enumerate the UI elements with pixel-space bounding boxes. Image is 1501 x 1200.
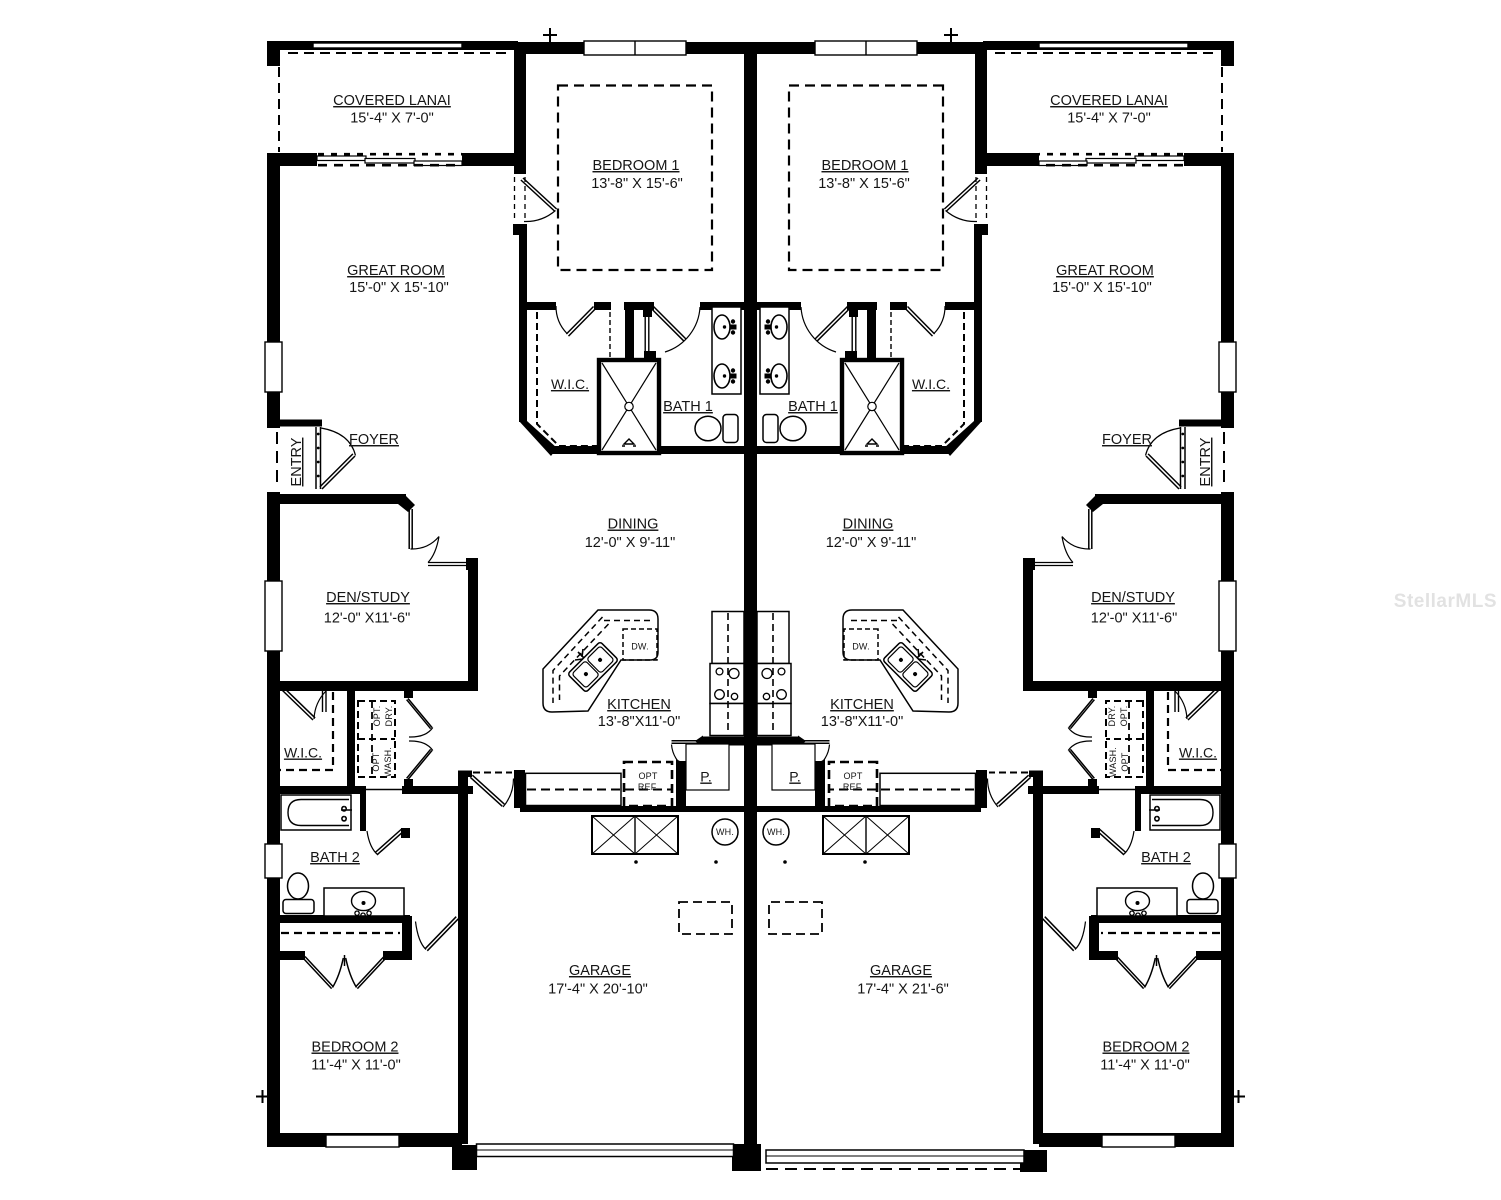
svg-text:OPT.: OPT.: [1119, 706, 1129, 727]
svg-text:KITCHEN: KITCHEN: [607, 697, 671, 713]
svg-text:OPT: OPT: [1120, 752, 1130, 771]
svg-text:W.I.C.: W.I.C.: [1179, 745, 1217, 761]
svg-text:WH.: WH.: [716, 827, 734, 837]
svg-text:15'-0" X 15'-10": 15'-0" X 15'-10": [349, 280, 449, 296]
svg-text:BEDROOM 2: BEDROOM 2: [311, 1040, 398, 1056]
svg-text:BATH 2: BATH 2: [1141, 850, 1191, 866]
svg-text:WASH.: WASH.: [383, 747, 393, 777]
svg-text:GREAT ROOM: GREAT ROOM: [347, 263, 445, 279]
svg-text:DRY.: DRY.: [1107, 706, 1117, 727]
svg-text:BATH 2: BATH 2: [310, 850, 360, 866]
svg-text:DW.: DW.: [631, 642, 649, 652]
svg-text:W.I.C.: W.I.C.: [284, 745, 322, 761]
svg-text:BEDROOM 1: BEDROOM 1: [592, 158, 679, 174]
svg-text:FOYER: FOYER: [1102, 432, 1152, 448]
svg-text:ENTRY: ENTRY: [289, 437, 305, 486]
svg-text:11'-4" X 11'-0": 11'-4" X 11'-0": [1100, 1058, 1189, 1074]
svg-text:FOYER: FOYER: [349, 432, 399, 448]
svg-text:KITCHEN: KITCHEN: [830, 697, 894, 713]
svg-text:13'-8"X11'-0": 13'-8"X11'-0": [821, 714, 903, 730]
svg-text:DRY.: DRY.: [384, 706, 394, 727]
svg-text:ENTRY: ENTRY: [1198, 437, 1214, 486]
svg-text:DW.: DW.: [852, 642, 870, 652]
svg-text:COVERED LANAI: COVERED LANAI: [333, 93, 451, 109]
svg-text:15'-4" X 7'-0": 15'-4" X 7'-0": [350, 111, 434, 127]
svg-text:StellarMLS: StellarMLS: [1394, 591, 1497, 612]
svg-text:15'-0" X 15'-10": 15'-0" X 15'-10": [1052, 280, 1152, 296]
svg-text:15'-4" X 7'-0": 15'-4" X 7'-0": [1067, 111, 1151, 127]
svg-text:12'-0" X 9'-11": 12'-0" X 9'-11": [585, 535, 676, 551]
svg-text:OPT: OPT: [371, 752, 381, 771]
svg-text:REF.: REF.: [843, 782, 863, 792]
svg-text:13'-8" X 15'-6": 13'-8" X 15'-6": [818, 176, 910, 192]
svg-text:13'-8"X11'-0": 13'-8"X11'-0": [598, 714, 680, 730]
svg-text:13'-8" X 15'-6": 13'-8" X 15'-6": [591, 176, 683, 192]
svg-text:DEN/STUDY: DEN/STUDY: [326, 590, 410, 606]
svg-text:12'-0" X11'-6": 12'-0" X11'-6": [1091, 611, 1178, 627]
svg-text:OPT: OPT: [638, 771, 657, 781]
svg-text:DINING: DINING: [843, 517, 894, 533]
svg-text:DINING: DINING: [608, 517, 659, 533]
svg-text:11'-4" X 11'-0": 11'-4" X 11'-0": [311, 1058, 400, 1074]
svg-text:W.I.C.: W.I.C.: [551, 376, 589, 392]
svg-text:12'-0" X11'-6": 12'-0" X11'-6": [324, 611, 411, 627]
svg-text:WH.: WH.: [767, 827, 785, 837]
svg-text:17'-4" X 21'-6": 17'-4" X 21'-6": [857, 982, 949, 998]
svg-text:COVERED LANAI: COVERED LANAI: [1050, 93, 1168, 109]
svg-text:REF.: REF.: [638, 782, 658, 792]
svg-text:GARAGE: GARAGE: [870, 963, 932, 979]
svg-text:OPT.: OPT.: [372, 706, 382, 727]
svg-text:BEDROOM 2: BEDROOM 2: [1102, 1040, 1189, 1056]
svg-text:GREAT ROOM: GREAT ROOM: [1056, 263, 1154, 279]
svg-text:GARAGE: GARAGE: [569, 963, 631, 979]
svg-text:BEDROOM 1: BEDROOM 1: [821, 158, 908, 174]
svg-text:BATH 1: BATH 1: [663, 399, 713, 415]
svg-text:OPT: OPT: [843, 771, 862, 781]
svg-text:W.I.C.: W.I.C.: [912, 376, 950, 392]
svg-text:P.: P.: [789, 769, 800, 785]
svg-text:17'-4" X 20'-10": 17'-4" X 20'-10": [548, 982, 648, 998]
svg-text:P.: P.: [700, 769, 711, 785]
svg-text:DEN/STUDY: DEN/STUDY: [1091, 590, 1175, 606]
svg-text:WASH.: WASH.: [1108, 747, 1118, 777]
svg-text:12'-0" X 9'-11": 12'-0" X 9'-11": [826, 535, 917, 551]
svg-text:BATH 1: BATH 1: [788, 399, 838, 415]
